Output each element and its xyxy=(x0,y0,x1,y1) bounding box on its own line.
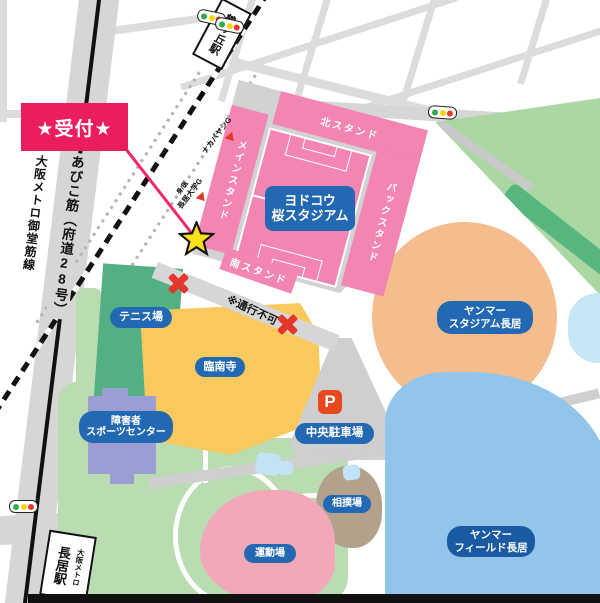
yodoko-stadium-name-1: ヨドコウ xyxy=(284,194,335,209)
undojo-label-text: 運動場 xyxy=(255,548,285,560)
nagai-station: 長居駅 大阪メトロ xyxy=(39,530,97,603)
rinnanji-label-text: 臨南寺 xyxy=(204,361,237,374)
parking-icon-letter: P xyxy=(324,392,335,412)
sumo-label-text: 相撲場 xyxy=(332,498,362,510)
park-path xyxy=(437,120,534,192)
yanmar-stadium-label-1: ヤンマー xyxy=(464,305,506,317)
map: あびこ筋（府道28号） 大阪メトロ御堂筋線 xyxy=(0,0,600,603)
traffic-light-icon xyxy=(9,500,38,513)
stand-north-label: 北スタンド xyxy=(319,112,381,142)
undojo-label: 運動場 xyxy=(244,544,296,563)
yodoko-stadium-name-2: 桜スタジアム xyxy=(271,209,348,224)
stand-back-label: バックスタンド xyxy=(362,180,398,265)
yanmar-stadium-label: ヤンマー スタジアム長居 xyxy=(437,301,533,334)
tennis-label: テニス場 xyxy=(110,307,172,328)
yanmar-stadium-label-2: スタジアム長居 xyxy=(449,318,522,330)
pond xyxy=(342,464,360,481)
x-mark-icon xyxy=(276,313,299,336)
parking-icon: P xyxy=(318,390,342,414)
pond-corner xyxy=(568,293,600,363)
yanmar-field-area xyxy=(385,372,600,597)
traffic-light-icon xyxy=(428,105,458,120)
reception-label: ★受付★ xyxy=(36,114,112,141)
road-label-metro-line: 大阪メトロ御堂筋線 xyxy=(20,154,51,272)
yanmar-field-label-2: フィールド長居 xyxy=(454,542,527,554)
street xyxy=(0,0,7,122)
bottom-border-bar xyxy=(28,594,600,603)
x-mark-icon xyxy=(167,272,190,295)
sports-center-label-1: 障害者 xyxy=(111,416,141,428)
street xyxy=(517,0,551,85)
sports-center-label: 障害者 スポーツセンター xyxy=(79,411,173,443)
sumo-label: 相撲場 xyxy=(323,495,371,513)
sports-center-building xyxy=(110,472,134,484)
parking-label: 中央駐車場 xyxy=(295,423,374,444)
tennis-label-text: テニス場 xyxy=(119,311,163,324)
yanmar-field-label-1: ヤンマー xyxy=(470,529,512,541)
rinnanji-label: 臨南寺 xyxy=(195,357,245,377)
sports-center-label-2: スポーツセンター xyxy=(86,427,166,439)
yanmar-field-label: ヤンマー フィールド長居 xyxy=(447,526,535,557)
star-icon xyxy=(178,221,215,256)
sports-center-building xyxy=(102,388,128,398)
reception-box: ★受付★ xyxy=(21,103,128,151)
pond xyxy=(278,461,293,475)
parking-label-text: 中央駐車場 xyxy=(306,427,364,440)
yodoko-stadium-label: ヨドコウ 桜スタジアム xyxy=(265,186,355,231)
